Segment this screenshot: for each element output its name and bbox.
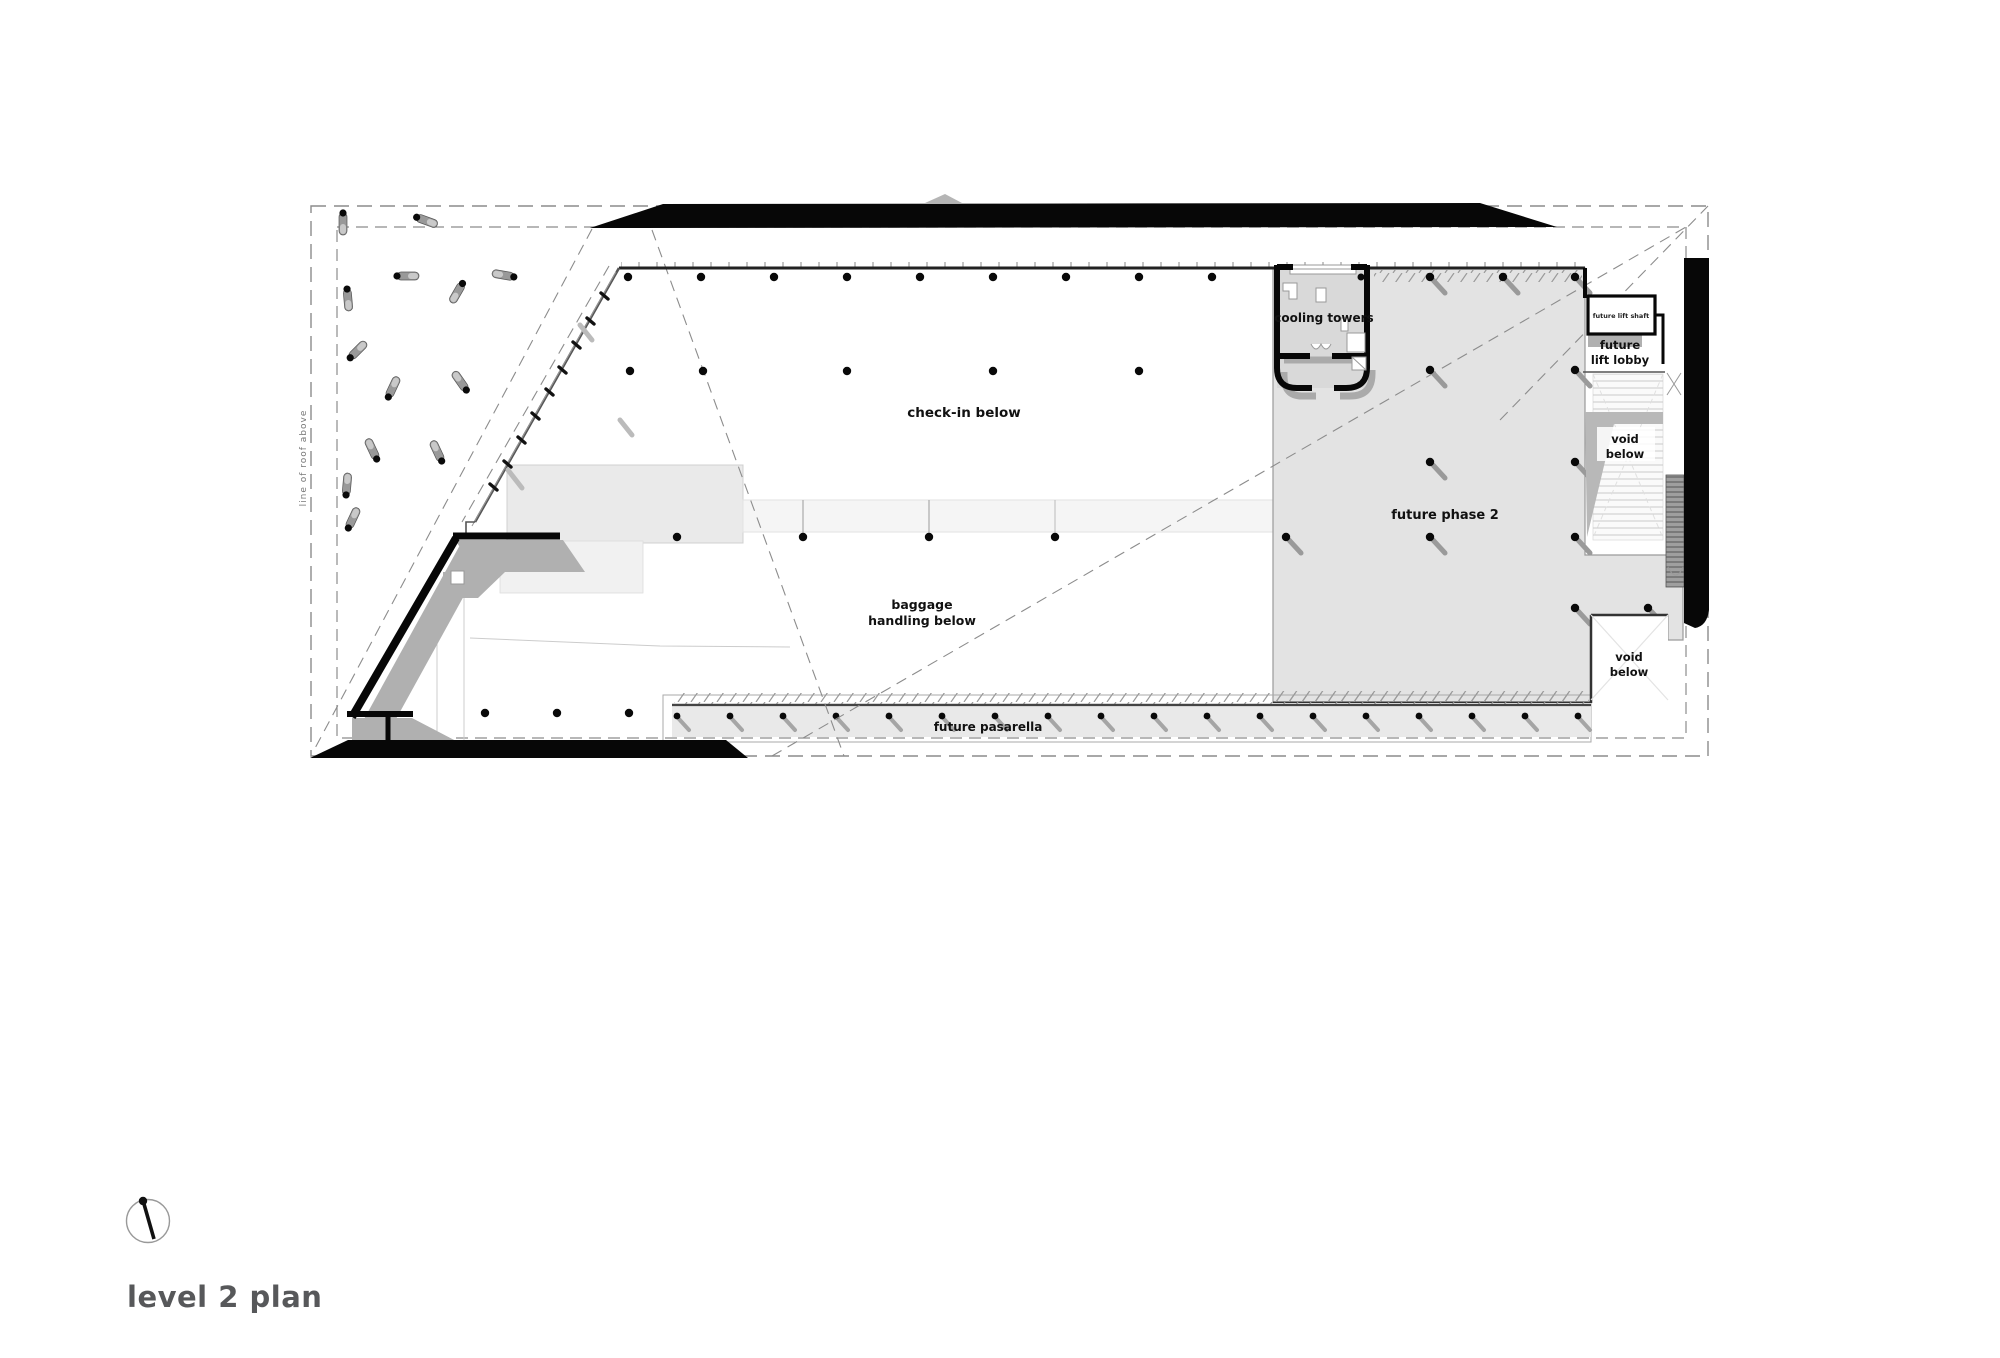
baggage-label-2: handling below xyxy=(868,613,976,628)
east-wall-band xyxy=(1684,258,1709,628)
page-title: level 2 plan xyxy=(127,1280,322,1314)
void-lower-label-2: below xyxy=(1610,665,1649,679)
wall-hatch-top xyxy=(1374,270,1582,282)
north-wall xyxy=(619,262,1585,269)
check-in-label: check-in below xyxy=(907,405,1020,421)
roof-line-note: line of roof above xyxy=(299,410,309,507)
drawing-sheet: line of roof above check-in below coolin… xyxy=(0,0,2000,1358)
cooling-towers-label: cooling towers xyxy=(1274,311,1373,325)
future-pasarella-label: future pasarella xyxy=(934,720,1043,734)
roof-hatch-opening xyxy=(451,571,464,584)
facade-column-ticks xyxy=(490,293,608,490)
baggage-label-1: baggage xyxy=(891,597,952,612)
void-lower-label-1: void xyxy=(1615,650,1643,664)
southwest-wall-core xyxy=(347,536,585,743)
facade-shadow-streaks xyxy=(508,325,632,488)
future-lift-shaft-label: future lift shaft xyxy=(1593,312,1650,320)
void-upper-label-2: below xyxy=(1606,447,1645,461)
void-upper-label-1: void xyxy=(1611,432,1639,446)
future-lift-lobby-label-2: lift lobby xyxy=(1591,353,1650,367)
north-compass-icon xyxy=(127,1197,170,1243)
south-band-wall xyxy=(310,740,748,758)
cooling-towers-room xyxy=(1277,265,1372,396)
future-lift-lobby-label-1: future xyxy=(1600,338,1641,352)
future-pasarella-strip xyxy=(663,693,1591,742)
level-2-floor-plan: line of roof above check-in below coolin… xyxy=(0,0,2000,1358)
roof-above-band xyxy=(590,194,1557,228)
future-phase2-label: future phase 2 xyxy=(1391,508,1499,523)
